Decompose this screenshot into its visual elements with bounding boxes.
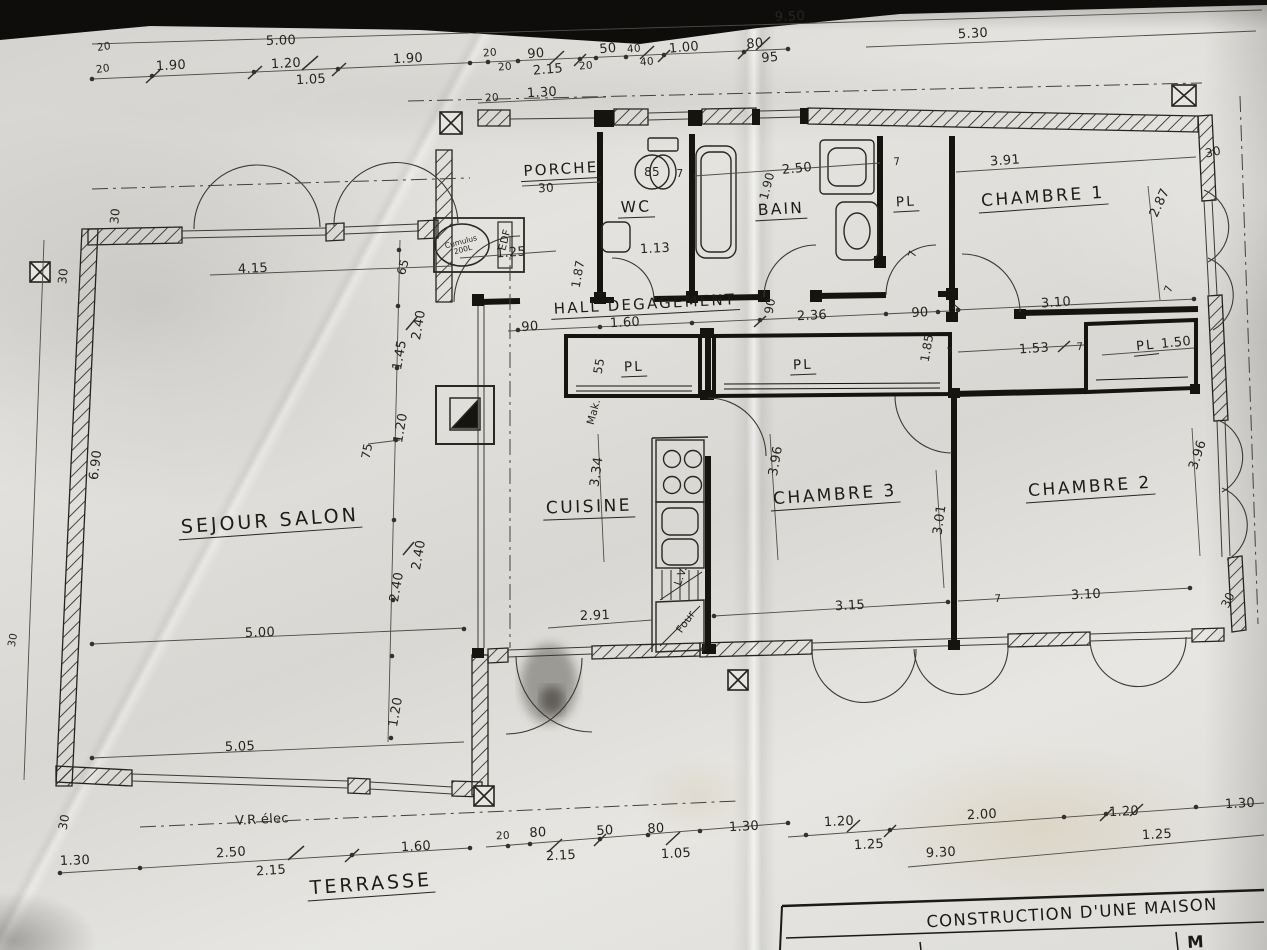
room-pl-cuisine: PL [621, 359, 648, 378]
bathtub [696, 146, 736, 258]
dim-20-bottom: 20 [496, 830, 511, 843]
dim-80-bottom-a: 80 [529, 825, 547, 841]
dim-160-terrasse: 1.60 [401, 839, 432, 856]
room-pl-chambre2: PL [1132, 337, 1159, 357]
dim-90a: 90 [527, 46, 545, 62]
bain-basin [836, 202, 878, 260]
room-bain: BAIN [754, 199, 807, 222]
dim-215a: 2.15 [532, 61, 563, 79]
room-wc: WC [617, 197, 654, 218]
dim-291: 2.91 [580, 608, 611, 624]
dim-7-wc: 7 [677, 168, 684, 180]
toilet-tank [648, 138, 678, 151]
label-wc-85: 85 [644, 165, 660, 179]
dim-75: 75 [359, 442, 376, 460]
dim-7-bain: 7 [893, 156, 901, 169]
dim-190a: 1.90 [156, 58, 187, 75]
dim-505: 5.05 [225, 739, 256, 755]
room-pl-chambre3: PL [790, 357, 817, 376]
dim-530: 5.30 [958, 26, 989, 43]
dim-130-bottom-left: 1.30 [60, 853, 91, 869]
dim-20a: 20 [96, 40, 112, 54]
dim-105-bottom: 1.05 [661, 846, 692, 863]
dim-310-bottom: 3.10 [1071, 587, 1102, 604]
dim-40a: 40 [627, 42, 642, 55]
dim-20c: 20 [483, 46, 498, 59]
dim-160-hall: 1.60 [610, 315, 641, 332]
dim-20b: 20 [95, 62, 111, 76]
dim-950: 9.50 [775, 9, 806, 25]
floorplan-drawing [0, 0, 1267, 950]
dim-90-hall-right: 90 [911, 305, 929, 321]
dim-190b: 1.90 [393, 51, 424, 68]
floorplan-photo: 9.50 5.00 5.30 20 20 1.90 1.20 1.05 1.90… [0, 0, 1267, 950]
dim-200: 2.00 [967, 807, 998, 824]
dim-215-bottom: 2.15 [546, 848, 577, 865]
dim-391: 3.91 [989, 152, 1020, 169]
dim-20e: 20 [579, 59, 594, 72]
dim-105a: 1.05 [296, 72, 327, 89]
room-porche: PORCHE [520, 158, 602, 182]
dim-20f: 20 [485, 92, 500, 105]
closets [566, 320, 1196, 396]
dim-113: 1.13 [640, 241, 671, 258]
dim-415: 4.15 [238, 261, 269, 278]
dim-50a: 50 [599, 41, 617, 57]
dim-930: 9.30 [926, 845, 957, 862]
dim-150: 1.50 [1160, 334, 1192, 352]
dim-130a: 1.30 [527, 85, 558, 102]
title-m-partial: M [1187, 932, 1206, 950]
dim-30-porche: 30 [538, 181, 555, 196]
dim-20d: 20 [498, 60, 513, 73]
wc-basin [602, 222, 630, 252]
dim-30-left-top2: 30 [55, 267, 70, 284]
ink-stain [521, 644, 577, 724]
label-vr-elec: V.R élec [235, 811, 289, 829]
dimension-lines [24, 10, 1264, 873]
dim-7-bottom: 7 [994, 593, 1002, 605]
room-pl-bain: PL [893, 193, 920, 212]
dim-310-hall: 3.10 [1040, 294, 1071, 311]
dim-215-terrasse: 2.15 [255, 862, 286, 879]
dim-90-hall: 90 [521, 319, 539, 335]
room-cuisine: CUISINE [543, 495, 636, 520]
dim-250-bain: 2.50 [781, 160, 813, 178]
dim-30-left-bottom1: 30 [6, 632, 20, 648]
dim-130-bottom-mid: 1.30 [729, 819, 760, 836]
dim-90-fold: 90 [762, 297, 779, 315]
dim-40b: 40 [640, 55, 655, 68]
dim-100: 1.00 [668, 39, 699, 57]
dim-120a: 1.20 [271, 56, 302, 73]
dim-50-bottom: 50 [596, 823, 614, 839]
dim-7-pl: 7 [1076, 341, 1084, 353]
dim-30-left-top1: 30 [107, 207, 122, 224]
dim-30-left-bottom2: 30 [56, 813, 73, 831]
dim-80a: 80 [746, 36, 764, 52]
dim-500-sejour: 5.00 [245, 625, 276, 641]
dim-55: 55 [591, 357, 608, 375]
dim-95: 95 [761, 50, 779, 66]
dim-130-bottom-right: 1.30 [1225, 796, 1256, 813]
dim-80-bottom-b: 80 [647, 821, 665, 837]
dim-7-153: 7 [946, 346, 954, 358]
dim-125-br-a: 1.25 [854, 837, 885, 854]
dim-315: 3.15 [835, 598, 866, 615]
dim-500-top: 5.00 [266, 33, 297, 49]
dim-250-terrasse: 2.50 [215, 844, 246, 861]
dim-125-br-b: 1.25 [1142, 827, 1173, 844]
dim-120-br-b: 1.20 [1109, 804, 1140, 821]
dim-236: 2.36 [797, 308, 828, 325]
dim-120-br-a: 1.20 [824, 814, 855, 831]
windows [132, 110, 1230, 794]
dim-153: 1.53 [1018, 340, 1049, 357]
